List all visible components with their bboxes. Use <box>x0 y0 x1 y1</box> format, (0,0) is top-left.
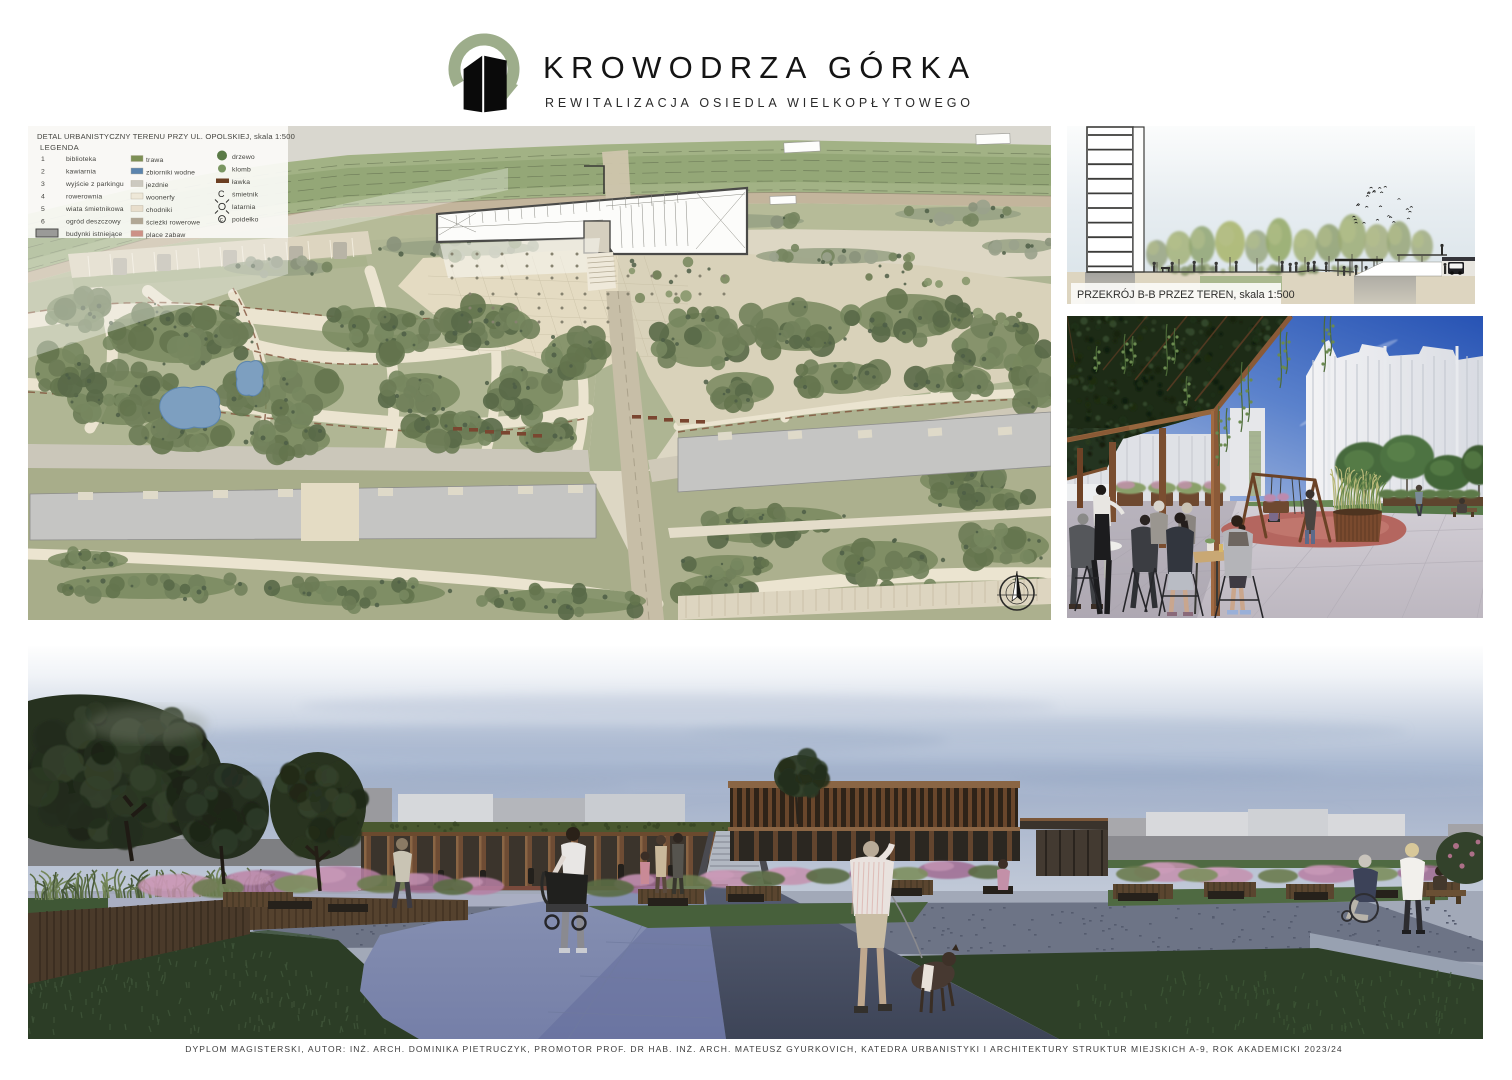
svg-text:jezdnie: jezdnie <box>145 182 169 189</box>
svg-text:chodniki: chodniki <box>146 207 172 214</box>
svg-text:latarnia: latarnia <box>232 204 256 211</box>
svg-text:c: c <box>220 218 223 224</box>
svg-text:rowerownia: rowerownia <box>66 194 102 201</box>
svg-text:woonerfy: woonerfy <box>145 195 175 202</box>
svg-text:klomb: klomb <box>232 167 251 174</box>
svg-text:C: C <box>218 189 225 199</box>
svg-text:trawa: trawa <box>146 157 163 164</box>
svg-text:ławka: ławka <box>232 179 250 186</box>
svg-text:LEGENDA: LEGENDA <box>40 143 80 152</box>
svg-text:poidełko: poidełko <box>232 217 259 224</box>
svg-text:place zabaw: place zabaw <box>146 232 185 239</box>
svg-text:zbiorniki wodne: zbiorniki wodne <box>146 170 195 177</box>
svg-text:3: 3 <box>41 181 45 188</box>
svg-text:4: 4 <box>41 194 45 201</box>
svg-text:kawiarnia: kawiarnia <box>66 169 96 176</box>
svg-text:śmietnik: śmietnik <box>232 192 259 199</box>
svg-text:5: 5 <box>41 206 45 213</box>
svg-text:PRZEKRÓJ B-B PRZEZ TEREN, skal: PRZEKRÓJ B-B PRZEZ TEREN, skala 1:500 <box>1077 288 1295 301</box>
svg-text:drzewo: drzewo <box>232 154 255 161</box>
svg-text:DETAL URBANISTYCZNY TERENU PRZ: DETAL URBANISTYCZNY TERENU PRZY UL. OPOL… <box>37 132 295 141</box>
svg-text:ścieżki rowerowe: ścieżki rowerowe <box>146 220 200 227</box>
svg-text:2: 2 <box>41 169 45 176</box>
svg-text:budynki istniejące: budynki istniejące <box>66 231 122 238</box>
svg-text:biblioteka: biblioteka <box>66 156 96 163</box>
svg-text:wyjście z parkingu: wyjście z parkingu <box>65 181 124 188</box>
svg-text:wiata śmietnikowa: wiata śmietnikowa <box>65 206 124 213</box>
svg-text:ogród deszczowy: ogród deszczowy <box>66 219 121 226</box>
svg-text:6: 6 <box>41 219 45 226</box>
svg-text:1: 1 <box>41 156 45 163</box>
